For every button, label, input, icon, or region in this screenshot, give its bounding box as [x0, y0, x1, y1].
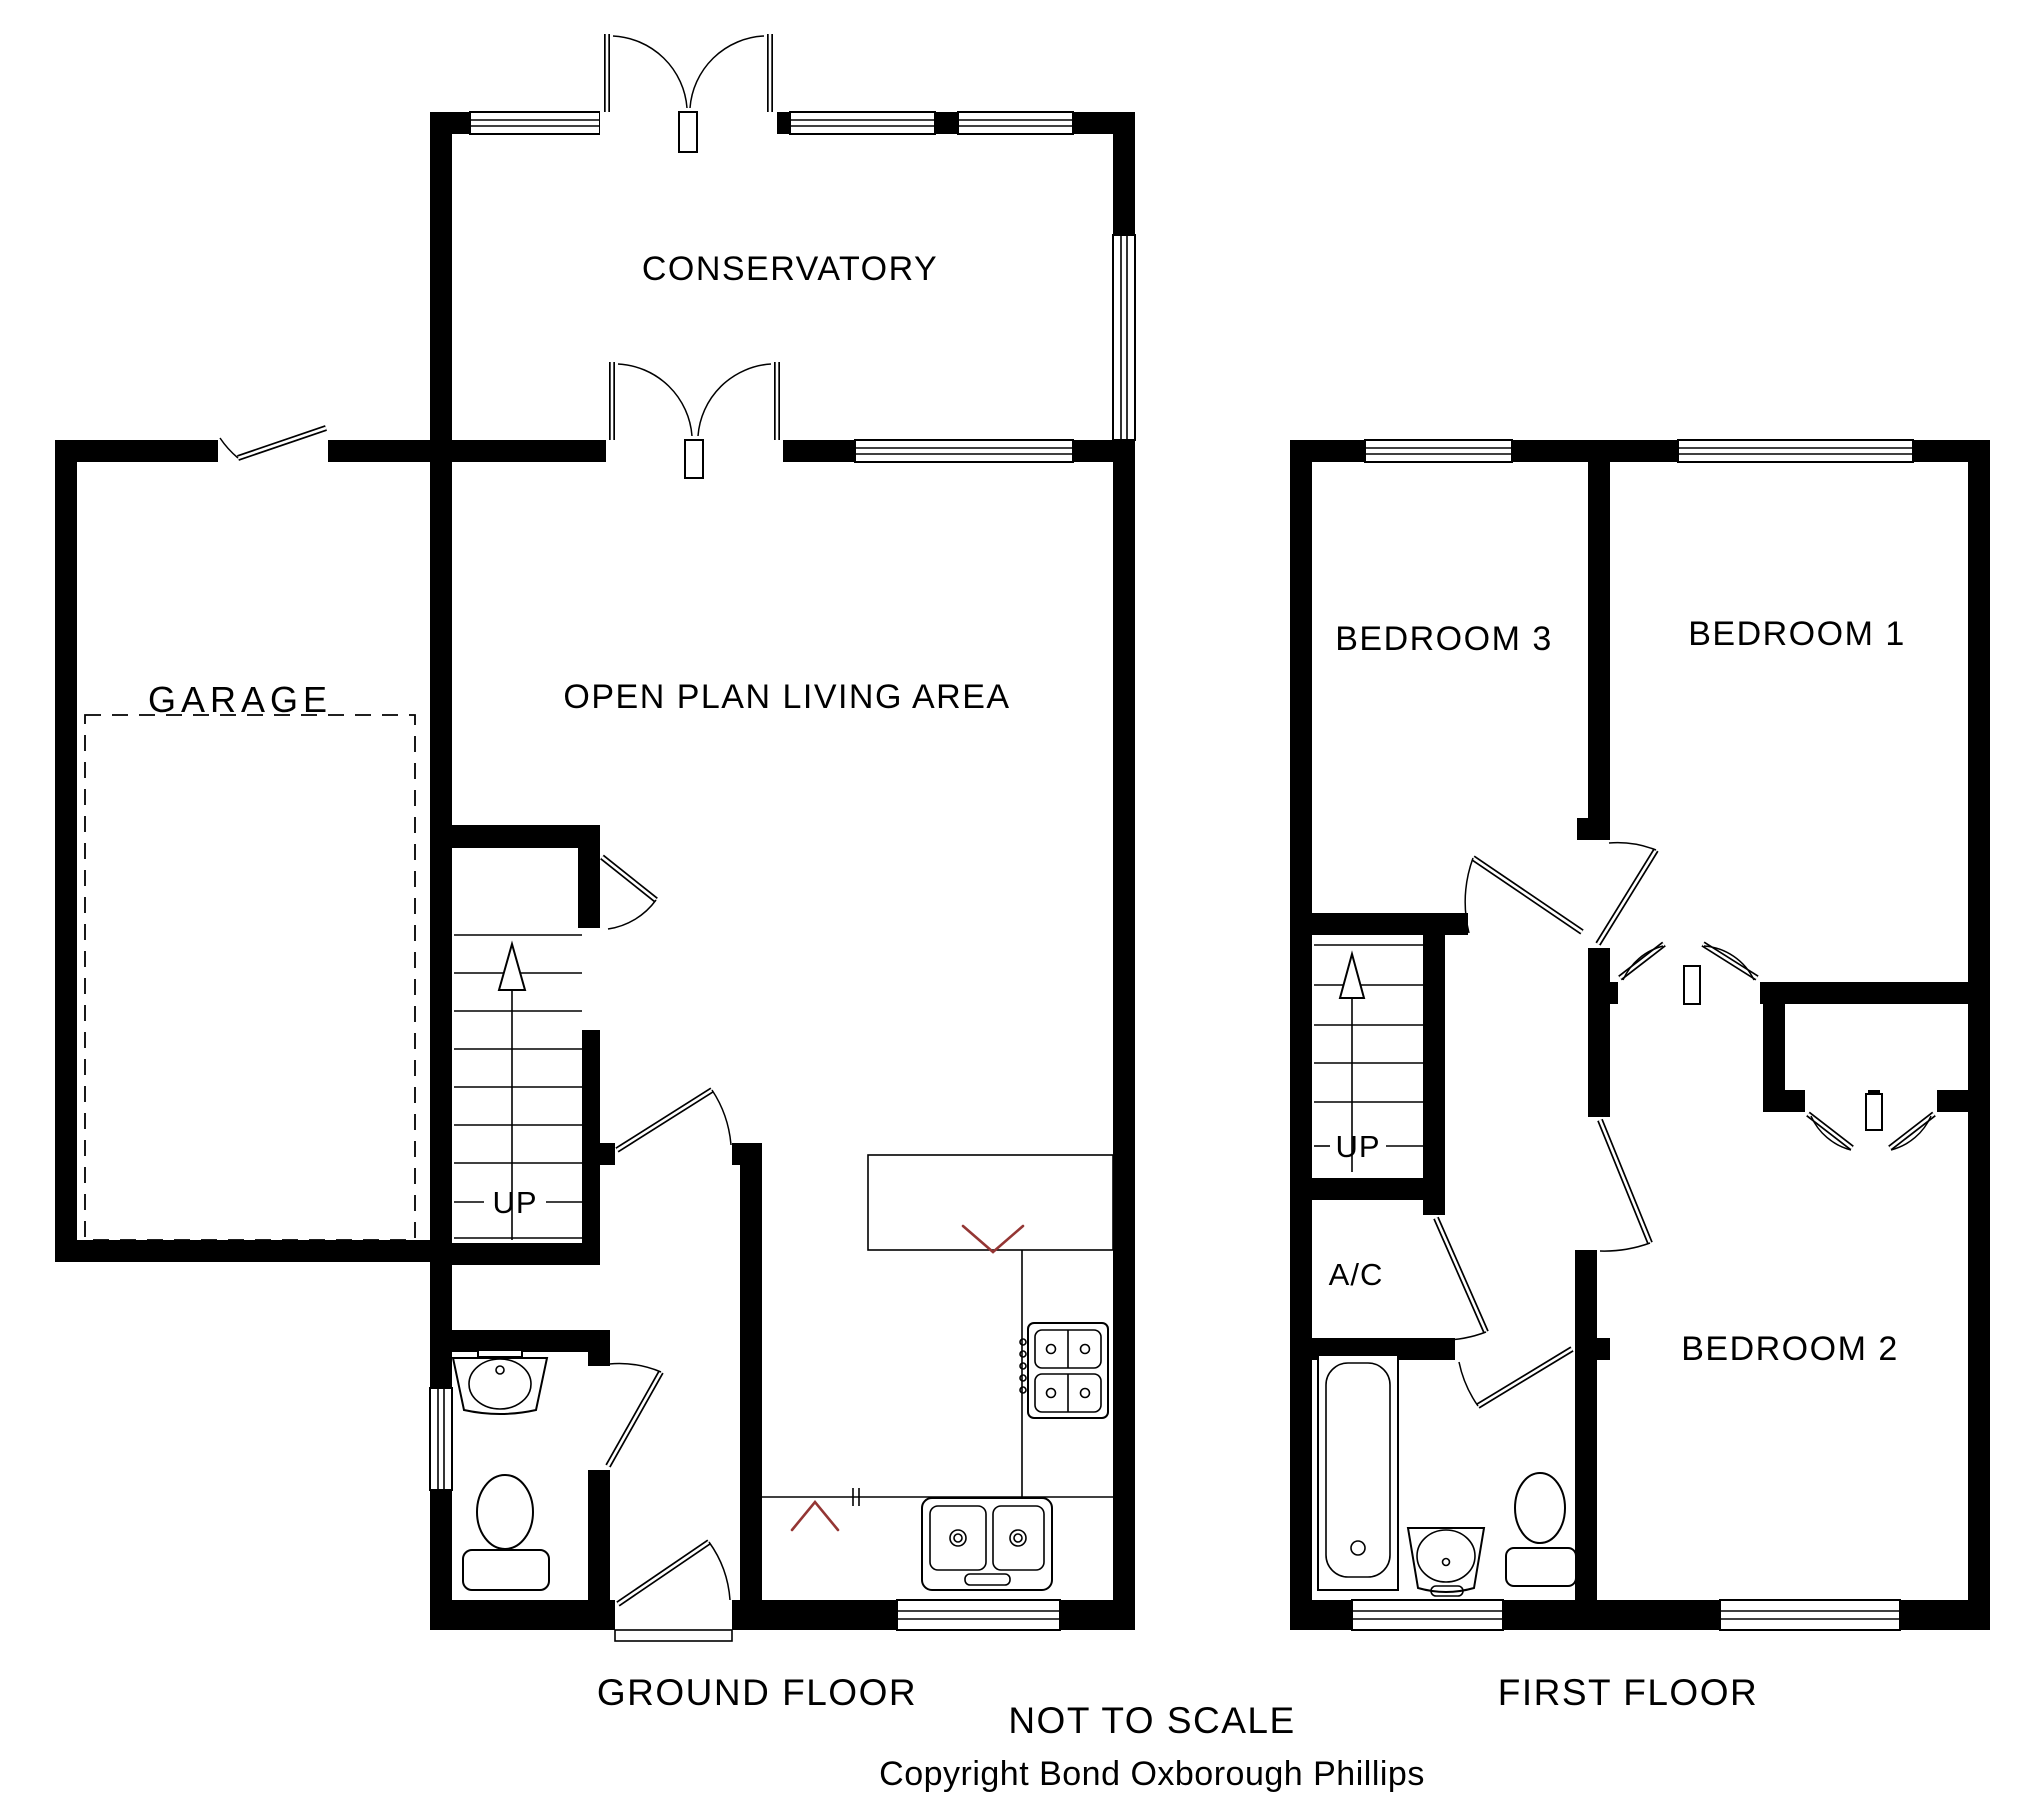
- wc-door-icon: [608, 1364, 661, 1466]
- bathtub-icon: [1318, 1355, 1398, 1590]
- stairs-up-label-ground: UP: [492, 1185, 537, 1220]
- garage-bay-dashed-outline: [85, 715, 415, 1240]
- ground-floor-plan: CONSERVATORY: [55, 34, 1135, 1641]
- window-icon: [1352, 1600, 1503, 1630]
- window-icon: [790, 112, 935, 134]
- bedroom2-door-icon: [1600, 1120, 1650, 1251]
- room-label-ac: A/C: [1329, 1257, 1384, 1292]
- toilet-icon: [1506, 1473, 1576, 1586]
- room-label-conservatory: CONSERVATORY: [642, 250, 938, 288]
- window-icon: [470, 112, 600, 134]
- room-label-garage: GARAGE: [148, 679, 332, 720]
- staircase-ground: UP: [452, 825, 656, 1265]
- counter-mark-icon: [963, 1226, 1023, 1252]
- conservatory: CONSERVATORY: [430, 34, 1135, 462]
- room-label-open-plan: OPEN PLAN LIVING AREA: [563, 678, 1010, 716]
- window-icon: [958, 112, 1073, 134]
- sink-icon: [1408, 1528, 1484, 1596]
- french-doors-icon: [600, 34, 777, 152]
- garage-door-icon: [218, 428, 328, 466]
- stairs-door-icon: [602, 857, 656, 929]
- open-plan-living-area: OPEN PLAN LIVING AREA: [430, 362, 1135, 1630]
- wardrobe-doors-icon: [1620, 944, 1757, 1004]
- kitchen: [762, 1155, 1113, 1630]
- ac-door-icon: [1436, 1218, 1486, 1340]
- copyright-note: Copyright Bond Oxborough Phillips: [879, 1755, 1425, 1793]
- bedroom3: BEDROOM 3: [1312, 462, 1610, 935]
- window-icon: [1720, 1600, 1900, 1630]
- double-doors-icon: [606, 362, 783, 478]
- window-icon: [1113, 235, 1135, 440]
- stairs-up-label-first: UP: [1335, 1129, 1380, 1164]
- front-door-icon: [615, 1542, 732, 1641]
- stair-treads: [1314, 945, 1423, 1146]
- first-floor-plan: BEDROOM 3 BEDROOM: [1290, 440, 1990, 1630]
- staircase-first: UP: [1312, 935, 1445, 1215]
- hallway: [600, 1090, 762, 1641]
- kitchen-counter: [868, 1155, 1113, 1250]
- window-icon: [1678, 440, 1913, 462]
- garage: GARAGE: [55, 428, 430, 1262]
- room-label-bedroom3: BEDROOM 3: [1335, 620, 1553, 658]
- window-icon: [897, 1600, 1060, 1630]
- bathroom: [1312, 1250, 1610, 1600]
- window-icon: [1365, 440, 1512, 462]
- ground-floor-title: GROUND FLOOR: [597, 1672, 917, 1713]
- bathroom-door-icon: [1459, 1349, 1572, 1406]
- window-icon: [855, 440, 1073, 462]
- counter-mark-icon: [792, 1502, 838, 1530]
- room-label-bedroom2: BEDROOM 2: [1681, 1330, 1899, 1368]
- airing-cupboard: A/C: [1329, 1218, 1486, 1340]
- hob-icon: [1020, 1323, 1108, 1418]
- wardrobe-doors-icon: [1808, 1094, 1934, 1150]
- bedroom3-door-icon: [1465, 858, 1582, 933]
- window-icon: [430, 1388, 452, 1490]
- bedroom1-door-icon: [1598, 843, 1656, 944]
- toilet-icon: [463, 1475, 549, 1590]
- kitchen-sink-icon: [922, 1498, 1052, 1590]
- scale-note: NOT TO SCALE: [1008, 1700, 1295, 1741]
- floor-plan-canvas: CONSERVATORY: [0, 0, 2025, 1809]
- bedroom2: BEDROOM 2: [1600, 1004, 1968, 1368]
- floor-plan-page: CONSERVATORY: [0, 0, 2025, 1809]
- sink-icon: [453, 1350, 547, 1414]
- room-label-bedroom1: BEDROOM 1: [1688, 615, 1906, 653]
- footer-labels: GROUND FLOOR FIRST FLOOR NOT TO SCALE Co…: [597, 1672, 1758, 1793]
- wc: [430, 1330, 661, 1600]
- first-floor-title: FIRST FLOOR: [1498, 1672, 1758, 1713]
- hall-door-icon: [617, 1090, 731, 1150]
